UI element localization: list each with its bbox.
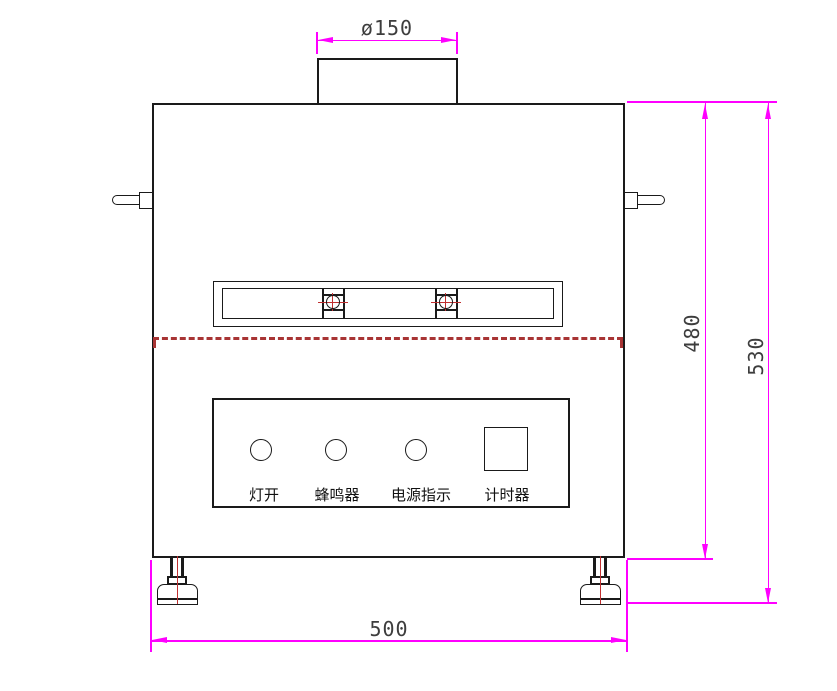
power-indicator-lamp [405,439,427,461]
timer-label: 计时器 [484,484,529,505]
body-width-arrow-right-icon [611,637,626,643]
carrier2-left-edge [435,288,437,319]
specimen-slot-inner [222,288,554,319]
right-foot-center-line [600,556,601,604]
body-height-dimension: 480 [680,313,704,352]
body-height-dim-line [705,103,707,559]
body-height-arrow-up-icon [702,104,708,119]
light-on-label: 灯开 [249,484,279,505]
carrier1-right-edge [343,288,345,319]
light-on-lamp [250,439,272,461]
body-height-ext-bottom [627,558,713,560]
duct-diameter-dimension: ø150 [361,16,413,40]
duct-dim-arrow-right-icon [441,37,456,43]
timer-display [484,427,528,471]
body-width-ext-right [626,560,628,652]
dashed-line-right-hook [620,338,623,348]
left-handle-mount [139,192,153,209]
overall-height-dimension: 530 [744,336,768,375]
carrier2-right-edge [456,288,458,319]
height-dims-ext-top [627,101,777,103]
buzzer-label: 蜂鸣器 [314,484,359,505]
technical-drawing-canvas: 灯开 蜂鸣器 电源指示 计时器 ø150 480 530 500 [0,0,837,691]
body-width-dimension: 500 [369,617,408,641]
carrier1-left-edge [322,288,324,319]
duct-dim-ext-left [316,32,318,54]
carrier1-screw-icon [326,295,340,309]
body-width-arrow-left-icon [152,637,167,643]
dashed-line-left-hook [153,338,156,348]
overall-height-arrow-down-icon [765,588,771,603]
overall-height-arrow-up-icon [765,104,771,119]
right-handle-mount [624,192,638,209]
right-handle-grip [635,195,665,205]
carrier2-screw-icon [439,295,453,309]
lid-parting-dashed-line [153,337,623,340]
duct-dim-ext-right [456,32,458,54]
left-handle-grip [112,195,142,205]
exhaust-duct-outline [317,58,458,105]
overall-height-ext-bottom [627,602,777,604]
power-indicator-label: 电源指示 [391,484,451,505]
buzzer-lamp [325,439,347,461]
left-foot-center-line [177,556,178,604]
duct-dim-arrow-left-icon [318,37,333,43]
body-height-arrow-down-icon [702,544,708,559]
